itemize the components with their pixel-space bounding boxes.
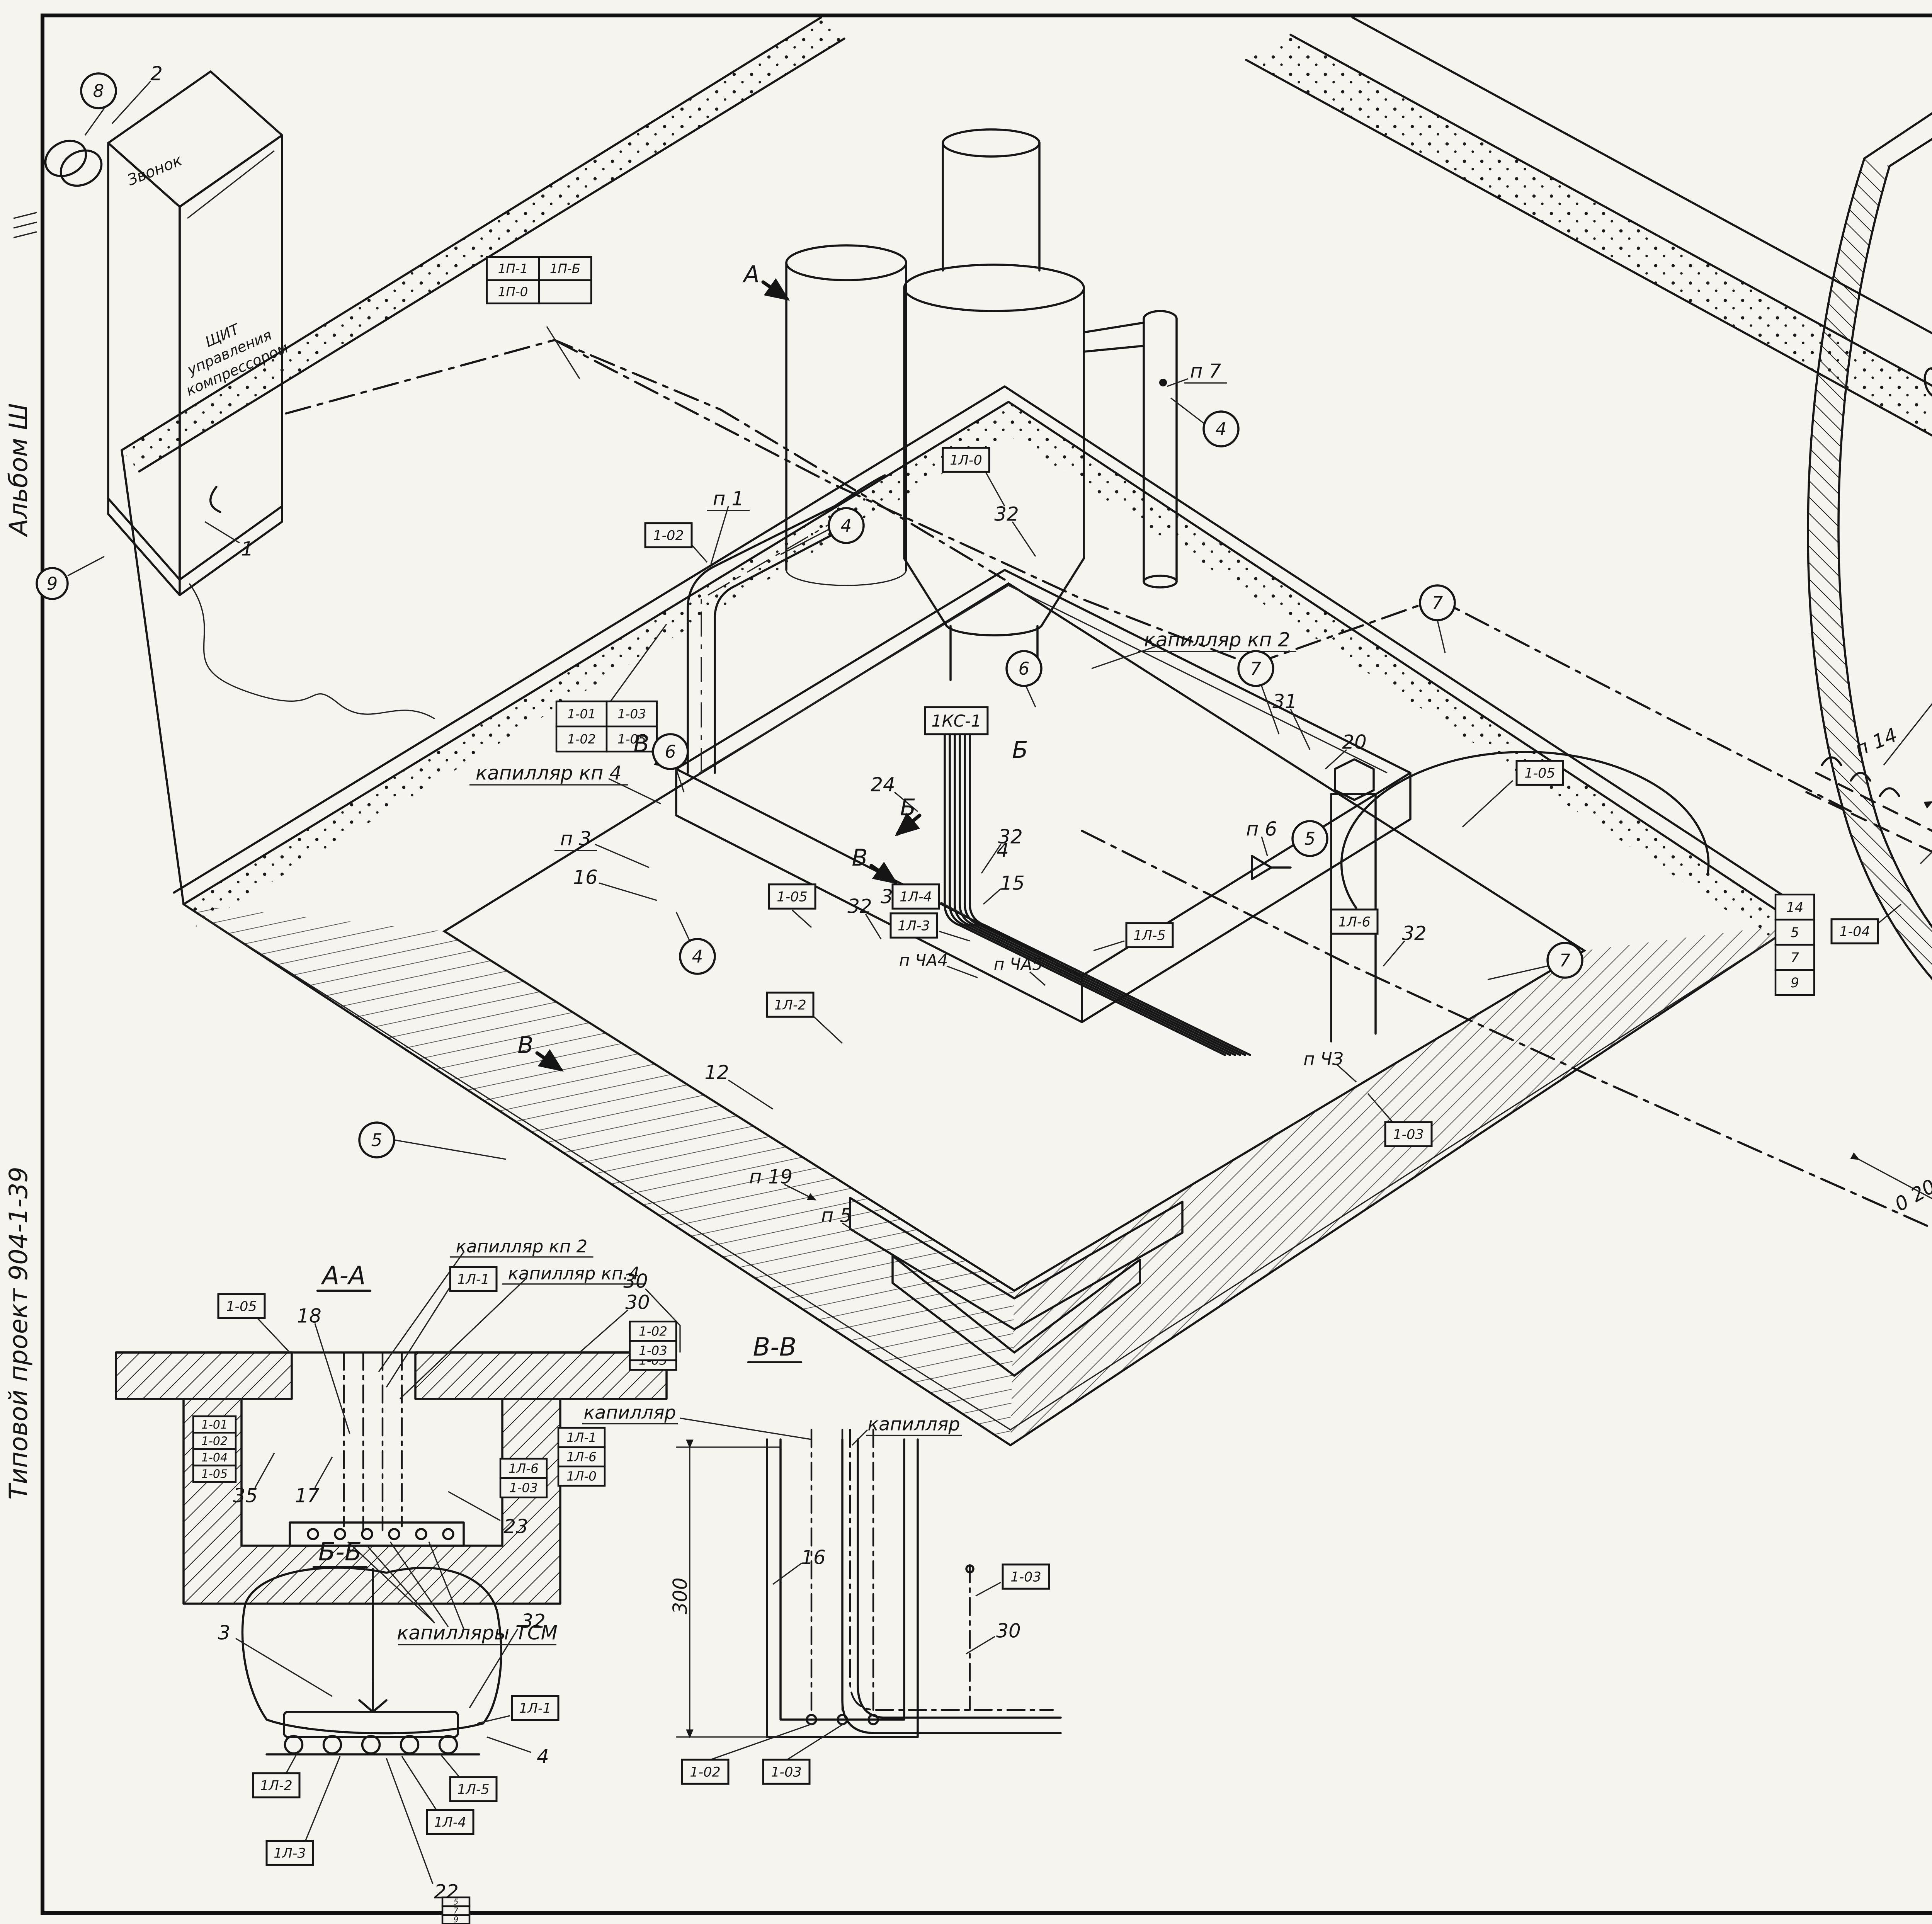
label-32-a: 32: [994, 503, 1036, 556]
section-flag-v2-text: В: [852, 844, 867, 871]
label-p43-text: п ЧЗ: [1303, 1049, 1343, 1069]
section-title-vv-text: В-В: [753, 1333, 797, 1362]
box-1-05-a-text: 1-05: [777, 890, 807, 905]
label-32-c-text: 32: [998, 826, 1023, 848]
label-kap-kp2-aa-text: капилляр кп 2: [456, 1236, 587, 1257]
box-1l5-bb-text: 1Л-5: [457, 1782, 489, 1798]
box-1l2-bb-text: 1Л-2: [260, 1778, 292, 1794]
label-20-text: 20: [1342, 731, 1367, 754]
label-30-vv2: 30: [966, 1620, 1021, 1654]
balloon-6-a-text: 6: [1019, 658, 1030, 679]
section-flag-v1-text: В: [633, 730, 649, 757]
label-4-bb: 4: [487, 1737, 549, 1768]
label-kap-kp4-aa-text: капилляр кп.4: [508, 1263, 639, 1284]
label-p6-text: п 6: [1246, 818, 1277, 840]
label-b2: Б: [1012, 737, 1028, 764]
alarm-bell: [39, 134, 107, 193]
label-p4a5-text: п ЧА5: [994, 955, 1043, 974]
stack-101-105-aa-cell-1: 1-02: [201, 1435, 228, 1448]
box-1-05-c-text: 1-05: [226, 1299, 257, 1315]
margin-album: Альбом Ш: [4, 403, 33, 537]
label-dim300: 300: [669, 1577, 691, 1614]
balloon-5-b-text: 5: [1304, 828, 1316, 849]
balloon-5-a: 5: [359, 1123, 506, 1159]
box-1l1-aa-text: 1Л-1: [457, 1272, 489, 1288]
box-1-03-vv1-text: 1-03: [1010, 1570, 1041, 1585]
label-pos2: 2: [112, 63, 163, 124]
balloon-7-c-text: 7: [1560, 950, 1571, 971]
label-30-aa-text: 30: [625, 1291, 650, 1314]
box-1l6-a: 1Л-6: [1331, 910, 1378, 934]
label-13: 13: [1920, 816, 1932, 864]
box-1-02-a-text: 1-02: [653, 528, 684, 544]
box-1l3-bb-text: 1Л-3: [274, 1846, 306, 1861]
label-35-text: 35: [233, 1485, 258, 1507]
balloon-9: 9: [37, 556, 104, 599]
label-p4a4-text: п ЧА4: [899, 951, 948, 970]
label-dim0200: 0 200: [1891, 1169, 1932, 1216]
box-1l5-a-text: 1Л-5: [1133, 928, 1165, 944]
stack-14-5-7-9: 14579: [1776, 895, 1814, 995]
label-31-text: 31: [1272, 691, 1297, 713]
balloon-9-text: 9: [47, 573, 58, 594]
label-p5-text: п 5: [821, 1204, 852, 1227]
label-kapillyar-kp4-text: капилляр кп 4: [476, 762, 622, 784]
box-1-03-a-text: 1-03: [1393, 1127, 1423, 1143]
section-title-vv: В-В: [748, 1333, 801, 1363]
box-1-03-vv1: 1-03: [976, 1565, 1049, 1596]
box-1l6-a-text: 1Л-6: [1338, 915, 1370, 930]
label-4-bb-text: 4: [537, 1745, 549, 1768]
stack-14-5-7-9-cell-0: 14: [1786, 900, 1804, 915]
pit-trench: [174, 386, 1808, 1445]
stack-1l-aa-right: 1Л-11Л-61Л-0: [558, 1428, 605, 1486]
stack-14-5-7-9-cell-2: 7: [1791, 950, 1799, 966]
box-1-03-vv2-text: 1-03: [771, 1765, 801, 1780]
label-32-bb-text: 32: [521, 1610, 546, 1633]
box-1l4-a-text: 1Л-4: [900, 890, 932, 905]
label-18: 18: [297, 1305, 350, 1434]
flex-conduit: [189, 583, 435, 719]
stack-101-105-aa-cell-3: 1-05: [201, 1468, 228, 1481]
section-flag-b1-text: Б: [900, 794, 916, 821]
stack-5-7-9-bb-cell-1: 7: [454, 1906, 459, 1915]
section-title-aa: А-А: [318, 1261, 371, 1291]
label-16-text: 16: [573, 866, 598, 889]
stack-5-7-9-bb-cell-0: 5: [454, 1897, 459, 1907]
label-3-bb-text: 3: [218, 1622, 230, 1644]
box-1-05-b: 1-05: [1463, 761, 1563, 827]
label-p14-text: п 14: [1852, 724, 1900, 761]
stack-5-7-9-bb-cell-2: 9: [454, 1915, 459, 1924]
stack-1l-aa-left-cell-1: 1-03: [509, 1481, 538, 1495]
balloon-4-b-text: 4: [1216, 419, 1227, 439]
balloon-7-a-text: 7: [1432, 593, 1443, 613]
stack-14-5-7-9-cell-3: 9: [1791, 975, 1799, 991]
label-kapillyar-kp4: капилляр кп 4: [469, 762, 661, 804]
margin-texts: Альбом Ш Типовой проект 904-1-39: [4, 403, 33, 1499]
balloon-5-b: 5: [1293, 821, 1327, 856]
label-p14: п 14: [1852, 724, 1900, 761]
box-cables-101-cell-0-1: 1-03: [617, 707, 646, 721]
label-dim0200-text: 0 200: [1891, 1169, 1932, 1216]
stack-101-105-aa: 1-011-021-041-05: [193, 1416, 236, 1482]
box-1-05-b-text: 1-05: [1524, 766, 1555, 781]
label-pos1-text: 1: [241, 538, 253, 560]
box-wiring-1p-cell-0-1: 1П-Б: [550, 262, 580, 276]
stack-1l-aa-left: 1Л-61-03: [500, 1459, 547, 1497]
stack-102-103-vv-cell-0: 1-02: [639, 1324, 667, 1339]
margin-project: Типовой проект 904-1-39: [4, 1167, 33, 1500]
balloon-7-a: 7: [1420, 585, 1455, 653]
balloon-4-a-text: 4: [841, 515, 852, 536]
label-kap-vv-right-text: капилляр: [867, 1414, 960, 1435]
box-1-02-vv-text: 1-02: [690, 1765, 720, 1780]
box-1-05-c: 1-05: [218, 1294, 290, 1352]
label-kap-vv-left: капилляр: [582, 1402, 811, 1439]
label-32-a-text: 32: [994, 503, 1019, 526]
box-1ks1-text: 1КС-1: [931, 712, 981, 731]
stack-102-103-vv: 1-021-03: [630, 1322, 676, 1360]
box-1l1-bb-text: 1Л-1: [519, 1701, 551, 1716]
label-pos1: 1: [205, 522, 253, 560]
label-18-text: 18: [297, 1305, 321, 1327]
label-3-a-text: 3: [881, 886, 893, 908]
label-24-text: 24: [871, 774, 895, 796]
box-1l2-bb: 1Л-2: [253, 1752, 299, 1797]
section-flag-a: А: [742, 261, 787, 299]
label-b2-text: Б: [1012, 737, 1028, 764]
box-1l2-a-text: 1Л-2: [774, 998, 806, 1013]
box-1l0-text: 1Л-0: [950, 453, 982, 468]
label-15-text: 15: [1000, 872, 1025, 895]
stack-1l-aa-right-cell-1: 1Л-6: [566, 1450, 597, 1465]
balloon-5-a-text: 5: [371, 1130, 383, 1150]
box-1l3-a-text: 1Л-3: [898, 919, 930, 934]
box-1l1-bb: 1Л-1: [477, 1696, 558, 1723]
section-aa-art: [116, 1352, 667, 1629]
balloon-4-c-text: 4: [692, 946, 703, 967]
stack-101-105-aa-cell-2: 1-04: [201, 1451, 228, 1465]
stack-101-105-aa-cell-0: 1-01: [201, 1418, 228, 1432]
section-flag-v3-text: В: [517, 1032, 533, 1059]
label-dim300-text: 300: [669, 1577, 691, 1614]
balloon-6-b-text: 6: [665, 742, 676, 762]
balloon-4-b: 4: [1171, 398, 1238, 446]
label-16-vv-text: 16: [801, 1546, 826, 1569]
label-30-vv2-text: 30: [996, 1620, 1021, 1642]
label-kap-vv-right: капилляр: [852, 1414, 962, 1445]
box-wiring-1p-cell-1-0: 1П-0: [498, 285, 528, 299]
label-32-b-text: 32: [847, 895, 872, 918]
box-1l5-bb: 1Л-5: [440, 1754, 497, 1801]
box-1-04-a-text: 1-04: [1839, 924, 1870, 940]
box-1l0: 1Л-0: [943, 448, 1005, 506]
box-wiring-1p: 1П-11П-Б1П-0: [487, 257, 591, 379]
label-17-text: 17: [295, 1485, 320, 1507]
conduit-hook: [211, 487, 220, 512]
label-pos2-text: 2: [150, 63, 163, 85]
box-1-02-a: 1-02: [645, 523, 707, 562]
label-kap-vv-left-text: капилляр: [583, 1402, 676, 1424]
label-32-d-text: 32: [1402, 922, 1427, 945]
stack-1l-aa-right-cell-2: 1Л-0: [566, 1469, 597, 1484]
label-p3-text: п 3: [560, 828, 591, 850]
balloon-7-b-text: 7: [1250, 658, 1262, 679]
label-12-text: 12: [704, 1062, 729, 1084]
label-3-bb: 3: [218, 1622, 332, 1697]
label-33: 33: [1884, 673, 1932, 765]
box-1l4-bb-text: 1Л-4: [434, 1815, 466, 1830]
discharge-pipe-p7: [1084, 311, 1177, 587]
box-cables-101-cell-1-0: 1-02: [567, 732, 596, 747]
stack-14-5-7-9-cell-1: 5: [1791, 925, 1799, 941]
box-1ks1: 1КС-1: [925, 707, 988, 734]
label-p7-text: п 7: [1190, 360, 1221, 383]
label-3-a: 3: [881, 886, 893, 908]
stack-5-7-9-bb: 579: [442, 1897, 469, 1924]
label-kapillyar-kp2-text: капилляр кп 2: [1144, 629, 1290, 651]
section-title-bb: Б-Б: [314, 1538, 367, 1567]
label-30-vv1-text: 30: [623, 1270, 648, 1293]
section-flag-a-text: А: [742, 261, 759, 288]
stack-1l-aa-left-cell-0: 1Л-6: [509, 1461, 539, 1476]
label-p1-text: п 1: [713, 488, 744, 510]
drawing-sheet: 36 Альбом Ш Типовой проект 904-1-39: [0, 0, 1932, 1924]
balloon-8-text: 8: [93, 81, 104, 101]
section-title-bb-text: Б-Б: [318, 1538, 362, 1567]
stack-1l-aa-right-cell-0: 1Л-1: [566, 1431, 597, 1445]
box-cables-101-cell-0-0: 1-01: [567, 707, 596, 721]
label-p19-text: п 19: [749, 1166, 793, 1188]
balloon-8: 8: [81, 73, 116, 135]
box-1-03-vv2: 1-03: [763, 1723, 844, 1784]
section-title-aa-text: А-А: [321, 1261, 366, 1290]
box-wiring-1p-cell-0-0: 1П-1: [498, 262, 528, 276]
label-17: 17: [295, 1457, 332, 1507]
stack-102-103-vv-cell-1: 1-03: [639, 1344, 667, 1358]
label-23-text: 23: [503, 1516, 528, 1538]
